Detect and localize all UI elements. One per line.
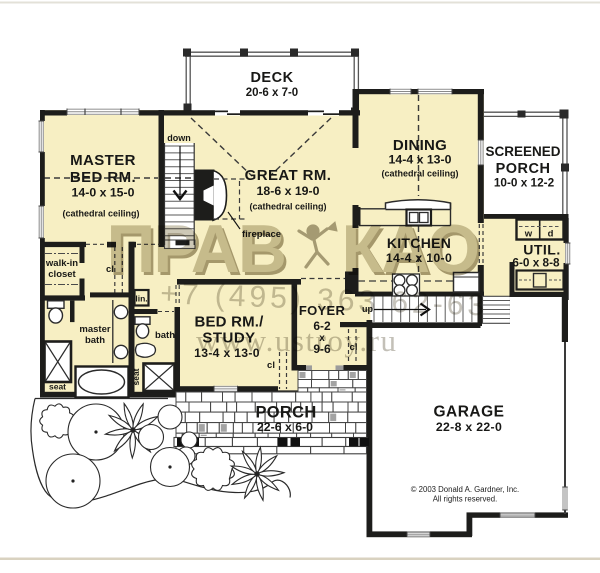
svg-text:walk-in: walk-in (45, 258, 78, 269)
svg-text:DINING: DINING (393, 137, 447, 154)
svg-text:6-0 x 8-8: 6-0 x 8-8 (512, 256, 560, 270)
svg-text:18-6 x 19-0: 18-6 x 19-0 (257, 184, 320, 198)
svg-text:14-0 x 15-0: 14-0 x 15-0 (72, 186, 135, 200)
svg-text:MASTER: MASTER (70, 152, 136, 169)
svg-text:© 2003 Donald A. Gardner, Inc.: © 2003 Donald A. Gardner, Inc. (411, 485, 519, 494)
svg-text:14-4 x 13-0: 14-4 x 13-0 (389, 153, 452, 167)
svg-text:cl: cl (267, 360, 275, 371)
svg-text:ПРАВ: ПРАВ (107, 211, 285, 287)
svg-text:BED RM.: BED RM. (70, 169, 136, 186)
svg-text:PORCH: PORCH (255, 404, 316, 422)
svg-text:GREAT RM.: GREAT RM. (245, 167, 332, 184)
svg-text:closet: closet (48, 269, 76, 280)
svg-text:down: down (167, 133, 191, 143)
svg-text:22-6 x 6-0: 22-6 x 6-0 (257, 420, 313, 434)
svg-text:DECK: DECK (250, 70, 293, 86)
svg-text:w: w (524, 229, 533, 240)
svg-text:seat: seat (131, 368, 141, 385)
svg-text:(cathedral ceiling): (cathedral ceiling) (381, 169, 458, 179)
svg-text:10-0 x 12-2: 10-0 x 12-2 (494, 176, 555, 190)
svg-text:lin.: lin. (135, 294, 147, 304)
svg-text:bath: bath (155, 330, 175, 341)
svg-text:www.ustroy.ru: www.ustroy.ru (196, 323, 397, 358)
svg-text:bath: bath (85, 335, 105, 346)
svg-text:seat: seat (49, 382, 66, 392)
svg-text:20-6 x 7-0: 20-6 x 7-0 (246, 87, 298, 99)
svg-text:(cathedral ceiling): (cathedral ceiling) (249, 202, 326, 212)
svg-text:22-8 x 22-0: 22-8 x 22-0 (436, 420, 502, 434)
svg-text:All rights reserved.: All rights reserved. (433, 495, 498, 504)
svg-text:SCREENED: SCREENED (485, 144, 560, 159)
svg-text:GARAGE: GARAGE (433, 404, 504, 421)
svg-text:КАО: КАО (342, 211, 479, 287)
svg-text:master: master (79, 324, 110, 335)
svg-text:d: d (548, 229, 554, 240)
